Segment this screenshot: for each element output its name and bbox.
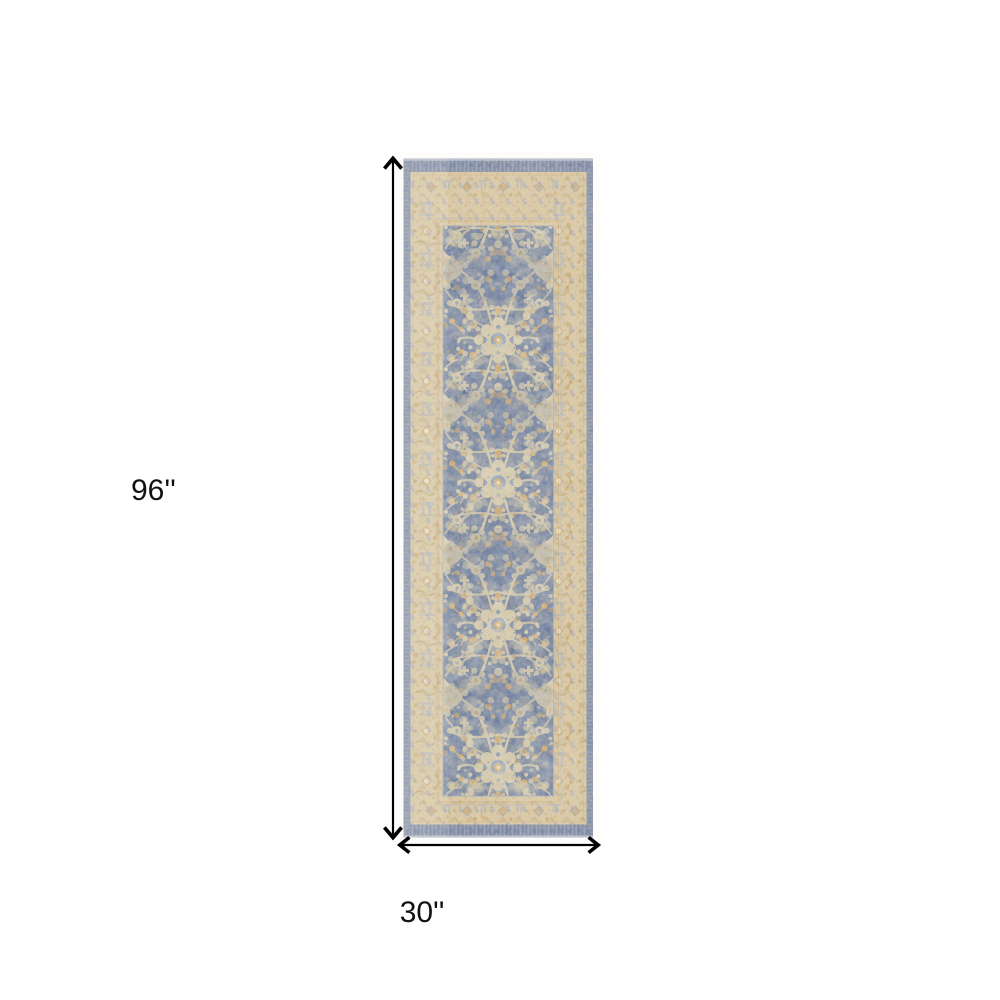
svg-text:30'': 30'': [400, 896, 445, 929]
svg-text:96'': 96'': [131, 474, 176, 507]
